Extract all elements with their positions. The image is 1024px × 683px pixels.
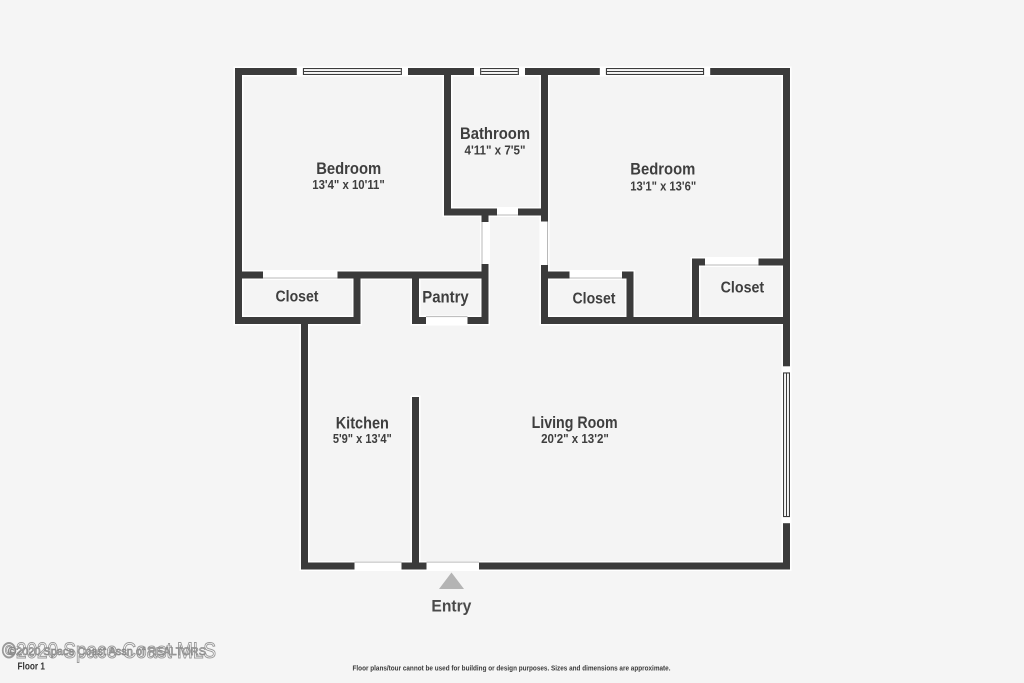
svg-text:Bedroom: Bedroom	[316, 159, 381, 178]
svg-text:Floor 1: Floor 1	[18, 661, 46, 673]
svg-text:5'9" x 13'4": 5'9" x 13'4"	[333, 431, 392, 446]
svg-text:20'2" x 13'2": 20'2" x 13'2"	[541, 431, 609, 446]
svg-text:Pantry: Pantry	[422, 288, 469, 306]
svg-text:13'4" x 10'11": 13'4" x 10'11"	[312, 177, 385, 192]
svg-text:Bedroom: Bedroom	[630, 159, 695, 178]
svg-text:Closet: Closet	[721, 280, 765, 297]
svg-text:13'1" x 13'6": 13'1" x 13'6"	[630, 179, 696, 194]
svg-text:Bathroom: Bathroom	[460, 124, 530, 143]
svg-text:4'11" x 7'5": 4'11" x 7'5"	[465, 143, 526, 158]
svg-text:Kitchen: Kitchen	[336, 413, 389, 432]
svg-text:©2020 Space Coast Assn of REAL: ©2020 Space Coast Assn of REALTORS	[8, 646, 206, 658]
svg-text:Closet: Closet	[276, 289, 320, 306]
svg-text:Entry: Entry	[431, 597, 471, 616]
svg-text:Closet: Closet	[573, 291, 617, 308]
svg-text:Floor plans/tour cannot be use: Floor plans/tour cannot be used for buil…	[353, 664, 671, 673]
svg-text:Living Room: Living Room	[532, 413, 618, 432]
